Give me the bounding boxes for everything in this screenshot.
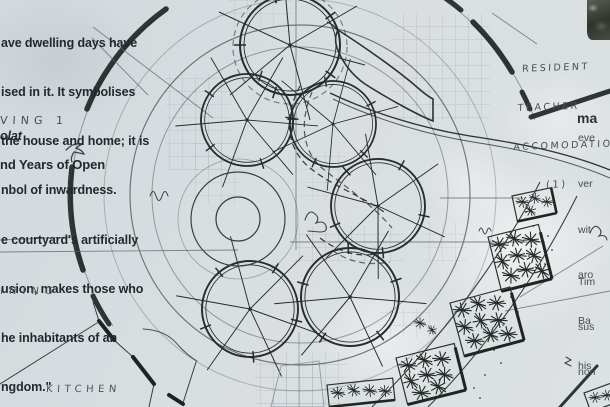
paragraph-line: he inhabitants of an bbox=[1, 330, 149, 346]
label-plot-name: olat bbox=[0, 129, 22, 143]
label-dining: INING bbox=[0, 286, 59, 297]
text-fragment: Tim bbox=[578, 275, 596, 290]
right-column-lower-lines: Tim sus non rec to r res Exa CO low ma r… bbox=[578, 245, 596, 407]
scanned-site-plan-page: ave dwelling days have ised in it. It sy… bbox=[0, 0, 610, 407]
label-living-unit: VING 1 bbox=[0, 114, 68, 127]
paragraph-line: e courtyard's artificially bbox=[1, 232, 149, 248]
text-fragment: eve bbox=[578, 131, 595, 146]
label-open-years: nd Years of Open bbox=[0, 157, 105, 172]
grid-hatch-patches bbox=[166, 0, 490, 406]
paragraph-line: ave dwelling days have bbox=[1, 35, 149, 51]
left-paragraph: ave dwelling days have ised in it. It sy… bbox=[1, 2, 149, 407]
text-fragment: sus bbox=[578, 320, 596, 335]
paragraph-line: nbol of inwardness. bbox=[1, 182, 149, 198]
label-kitchen: KITCHEN bbox=[46, 384, 122, 395]
text-fragment: wit bbox=[578, 223, 595, 238]
paragraph-line: the house and home; it is bbox=[1, 133, 149, 149]
text-fragment: non bbox=[578, 365, 596, 380]
text-fragment: ver bbox=[578, 177, 595, 192]
paragraph-line: ised in it. It symbolises bbox=[1, 84, 149, 100]
